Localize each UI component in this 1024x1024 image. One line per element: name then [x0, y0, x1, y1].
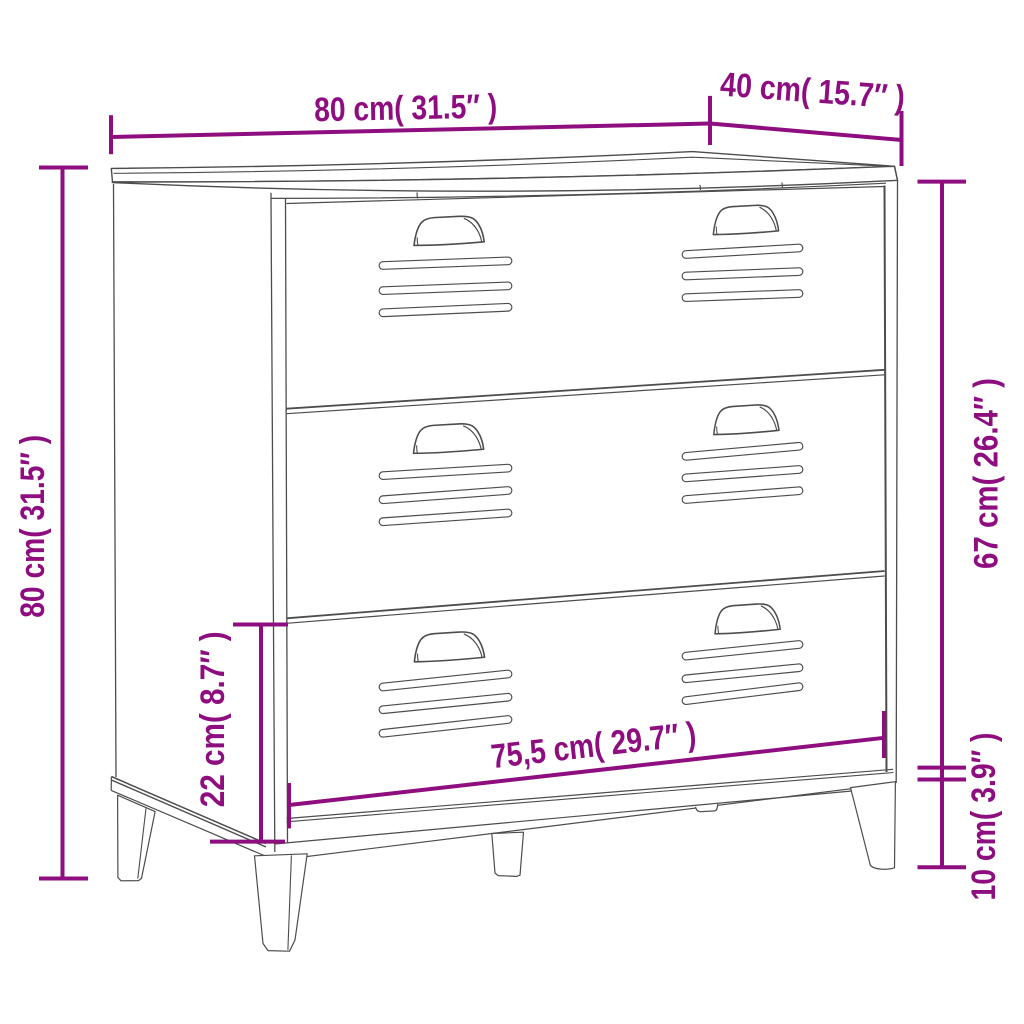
svg-text:10 cm( 3.9″ ): 10 cm( 3.9″ ) — [965, 733, 1003, 901]
svg-text:40 cm( 15.7″ ): 40 cm( 15.7″ ) — [719, 66, 906, 117]
svg-text:67 cm( 26.4″ ): 67 cm( 26.4″ ) — [968, 378, 1006, 569]
svg-text:75,5 cm( 29.7″ ): 75,5 cm( 29.7″ ) — [489, 715, 698, 776]
svg-text:80 cm( 31.5″ ): 80 cm( 31.5″ ) — [14, 435, 52, 618]
svg-text:80 cm( 31.5″ ): 80 cm( 31.5″ ) — [314, 87, 498, 129]
svg-text:22 cm( 8.7″ ): 22 cm( 8.7″ ) — [194, 631, 232, 807]
